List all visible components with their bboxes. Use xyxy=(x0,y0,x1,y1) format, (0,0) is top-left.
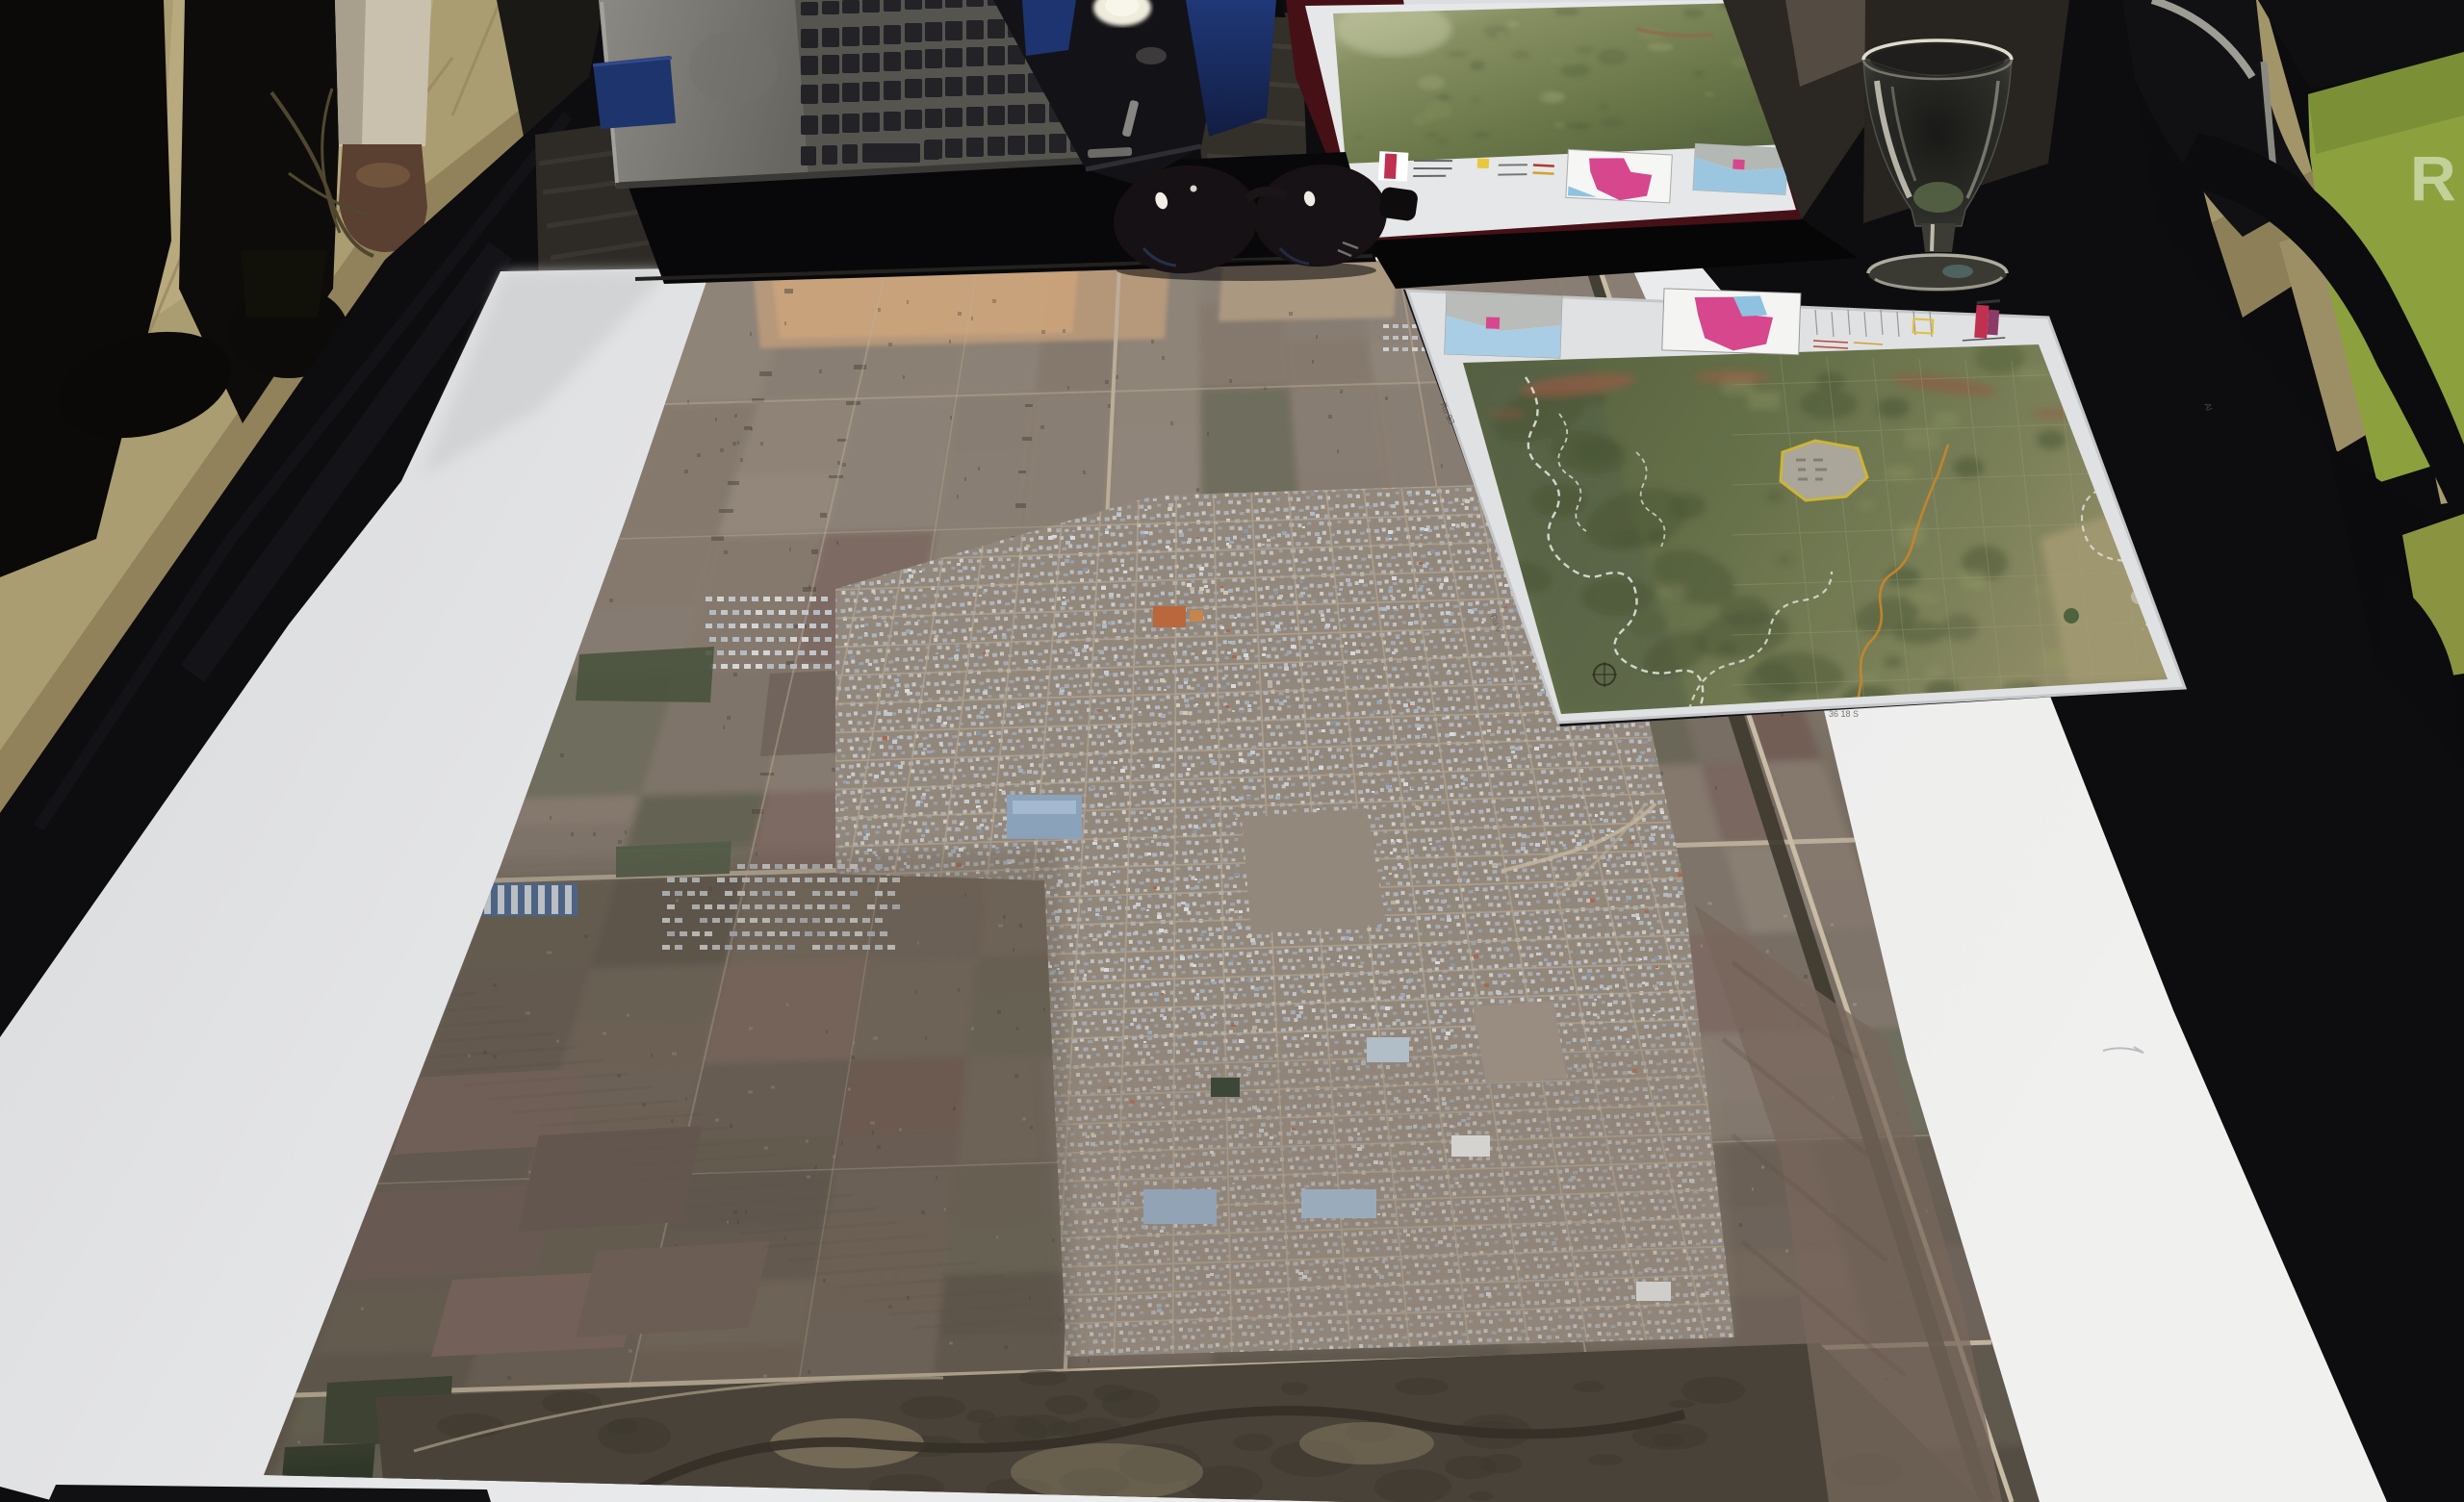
svg-text:R: R xyxy=(2410,142,2456,214)
svg-text:36 18 S: 36 18 S xyxy=(1829,709,1859,719)
